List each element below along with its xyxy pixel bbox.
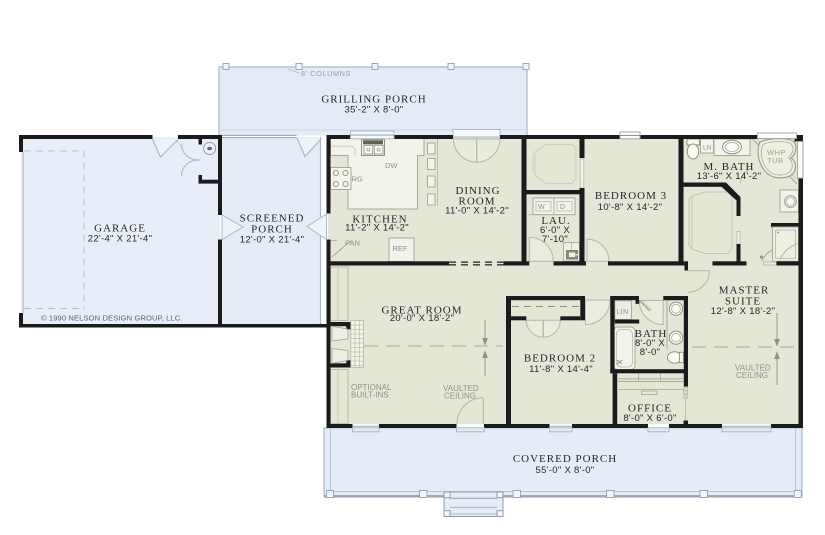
svg-text:8'-0" X 6'-0": 8'-0" X 6'-0" [623, 413, 676, 424]
svg-text:CEILING: CEILING [736, 371, 768, 380]
svg-text:11'-2" X 14'-2": 11'-2" X 14'-2" [345, 223, 409, 234]
svg-text:8'-0": 8'-0" [640, 347, 660, 358]
svg-text:55'-0" X 8'-0": 55'-0" X 8'-0" [536, 465, 595, 476]
svg-text:35'-2" X 8'-0": 35'-2" X 8'-0" [345, 105, 404, 116]
svg-text:CEILING: CEILING [444, 392, 476, 401]
svg-text:RG: RG [352, 175, 363, 184]
svg-text:© 1990 NELSON DESIGN GROUP, LL: © 1990 NELSON DESIGN GROUP, LLC. [41, 314, 183, 323]
svg-text:BEDROOM 3: BEDROOM 3 [595, 190, 667, 202]
svg-text:13'-6" X 14'-2": 13'-6" X 14'-2" [697, 171, 762, 182]
svg-text:REF: REF [393, 244, 408, 253]
svg-text:COVERED PORCH: COVERED PORCH [513, 453, 617, 465]
svg-text:W: W [538, 204, 545, 211]
svg-text:8' COLUMNS: 8' COLUMNS [301, 69, 351, 78]
svg-text:BEDROOM 2: BEDROOM 2 [524, 353, 596, 365]
svg-text:TUB: TUB [767, 156, 784, 165]
svg-text:LN: LN [703, 145, 712, 152]
svg-text:LIN: LIN [617, 309, 629, 316]
svg-text:22'-4" X 21'-4": 22'-4" X 21'-4" [88, 234, 153, 245]
svg-text:BUILT-INS: BUILT-INS [351, 391, 389, 400]
svg-text:12'-8" X 18'-2": 12'-8" X 18'-2" [711, 306, 776, 317]
svg-text:7'-10": 7'-10" [542, 234, 568, 245]
svg-text:DW: DW [385, 161, 398, 170]
svg-text:D: D [560, 204, 565, 211]
svg-text:10'-8" X 14'-2": 10'-8" X 14'-2" [598, 202, 663, 213]
svg-text:11'-0" X 14'-2": 11'-0" X 14'-2" [445, 206, 509, 217]
svg-text:20'-0" X 18'-2": 20'-0" X 18'-2" [390, 313, 455, 324]
svg-text:11'-8" X 14'-4": 11'-8" X 14'-4" [529, 364, 593, 375]
svg-text:PAN: PAN [345, 239, 360, 248]
svg-text:12'-0" X 21'-4": 12'-0" X 21'-4" [240, 235, 305, 246]
